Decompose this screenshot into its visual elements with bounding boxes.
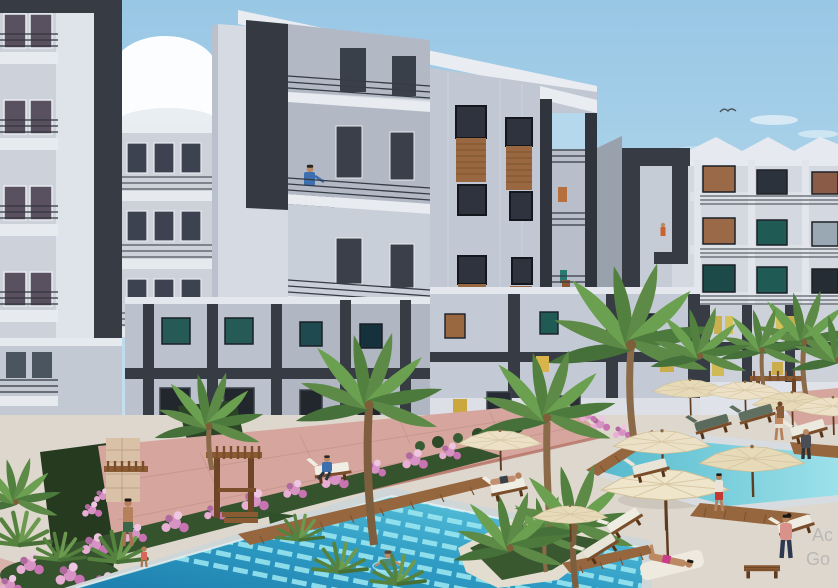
parapet-zigzag [690, 137, 838, 166]
person-orange-balcony [661, 223, 666, 236]
watermark-line1: Ac [812, 525, 833, 545]
architectural-rendering: Ac Go [0, 0, 838, 588]
windows-row2 [703, 218, 838, 246]
watermark-line2: Go [806, 549, 830, 569]
windows-row3 [703, 265, 838, 293]
corner-balcony-frame [540, 86, 597, 320]
charcoal-frame-centre [246, 20, 288, 210]
balcony-floor2 [288, 102, 430, 214]
